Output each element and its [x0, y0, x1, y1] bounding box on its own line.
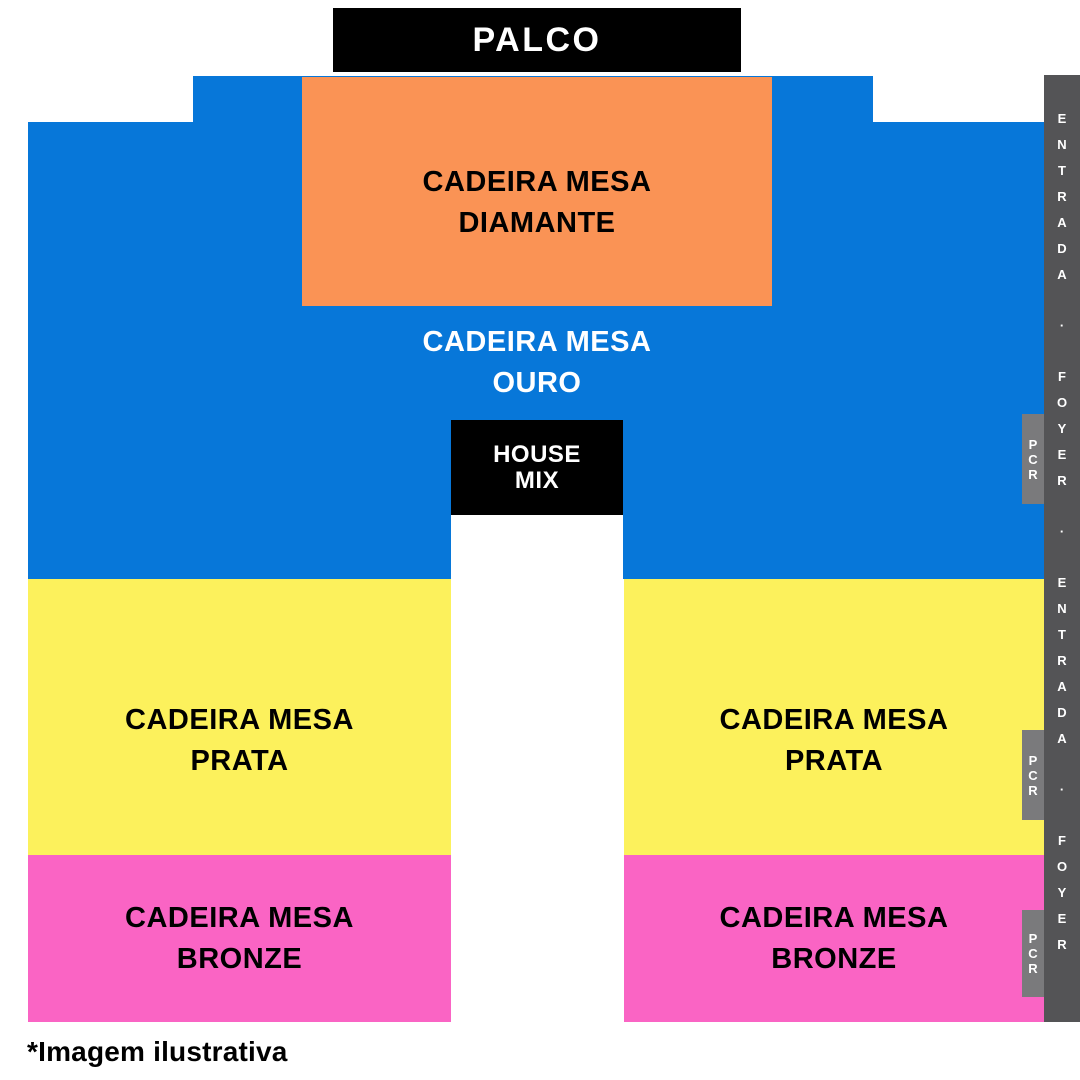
- section-bronze-right-label: CADEIRA MESA BRONZE: [720, 898, 949, 980]
- seating-map: PALCO CADEIRA MESA DIAMANTE CADEIRA MESA…: [0, 0, 1080, 1080]
- section-diamante-label: CADEIRA MESA DIAMANTE: [423, 162, 652, 244]
- section-prata-left: CADEIRA MESA PRATA: [28, 579, 451, 855]
- pcr-box-1: PCR: [1022, 414, 1044, 504]
- center-aisle: [451, 515, 623, 580]
- pcr-box-3: PCR: [1022, 910, 1044, 997]
- section-bronze-left-label: CADEIRA MESA BRONZE: [125, 898, 354, 980]
- entrance-foyer-strip: ENTRADA·FOYER·ENTRADA·FOYER: [1044, 75, 1080, 1022]
- section-prata-right: CADEIRA MESA PRATA: [624, 579, 1044, 855]
- house-mix-label: HOUSE MIX: [493, 442, 581, 494]
- section-bronze-right: CADEIRA MESA BRONZE: [624, 855, 1044, 1022]
- section-ouro-label: CADEIRA MESA OURO: [423, 322, 652, 404]
- entrance-foyer-vertical-text: ENTRADA·FOYER·ENTRADA·FOYER: [1057, 106, 1067, 958]
- section-prata-right-label: CADEIRA MESA PRATA: [720, 700, 949, 782]
- stage-label: PALCO: [473, 21, 602, 60]
- pcr-box-1-label: PCR: [1028, 437, 1037, 482]
- section-diamante: CADEIRA MESA DIAMANTE: [302, 77, 772, 306]
- section-ouro: CADEIRA MESA OURO: [302, 306, 772, 420]
- house-mix-box: HOUSE MIX: [451, 420, 623, 515]
- pcr-box-2-label: PCR: [1028, 753, 1037, 798]
- footnote: *Imagem ilustrativa: [27, 1036, 288, 1068]
- stage-banner: PALCO: [333, 8, 741, 72]
- section-bronze-left: CADEIRA MESA BRONZE: [28, 855, 451, 1022]
- pcr-box-2: PCR: [1022, 730, 1044, 820]
- pcr-box-3-label: PCR: [1028, 931, 1037, 976]
- section-prata-left-label: CADEIRA MESA PRATA: [125, 700, 354, 782]
